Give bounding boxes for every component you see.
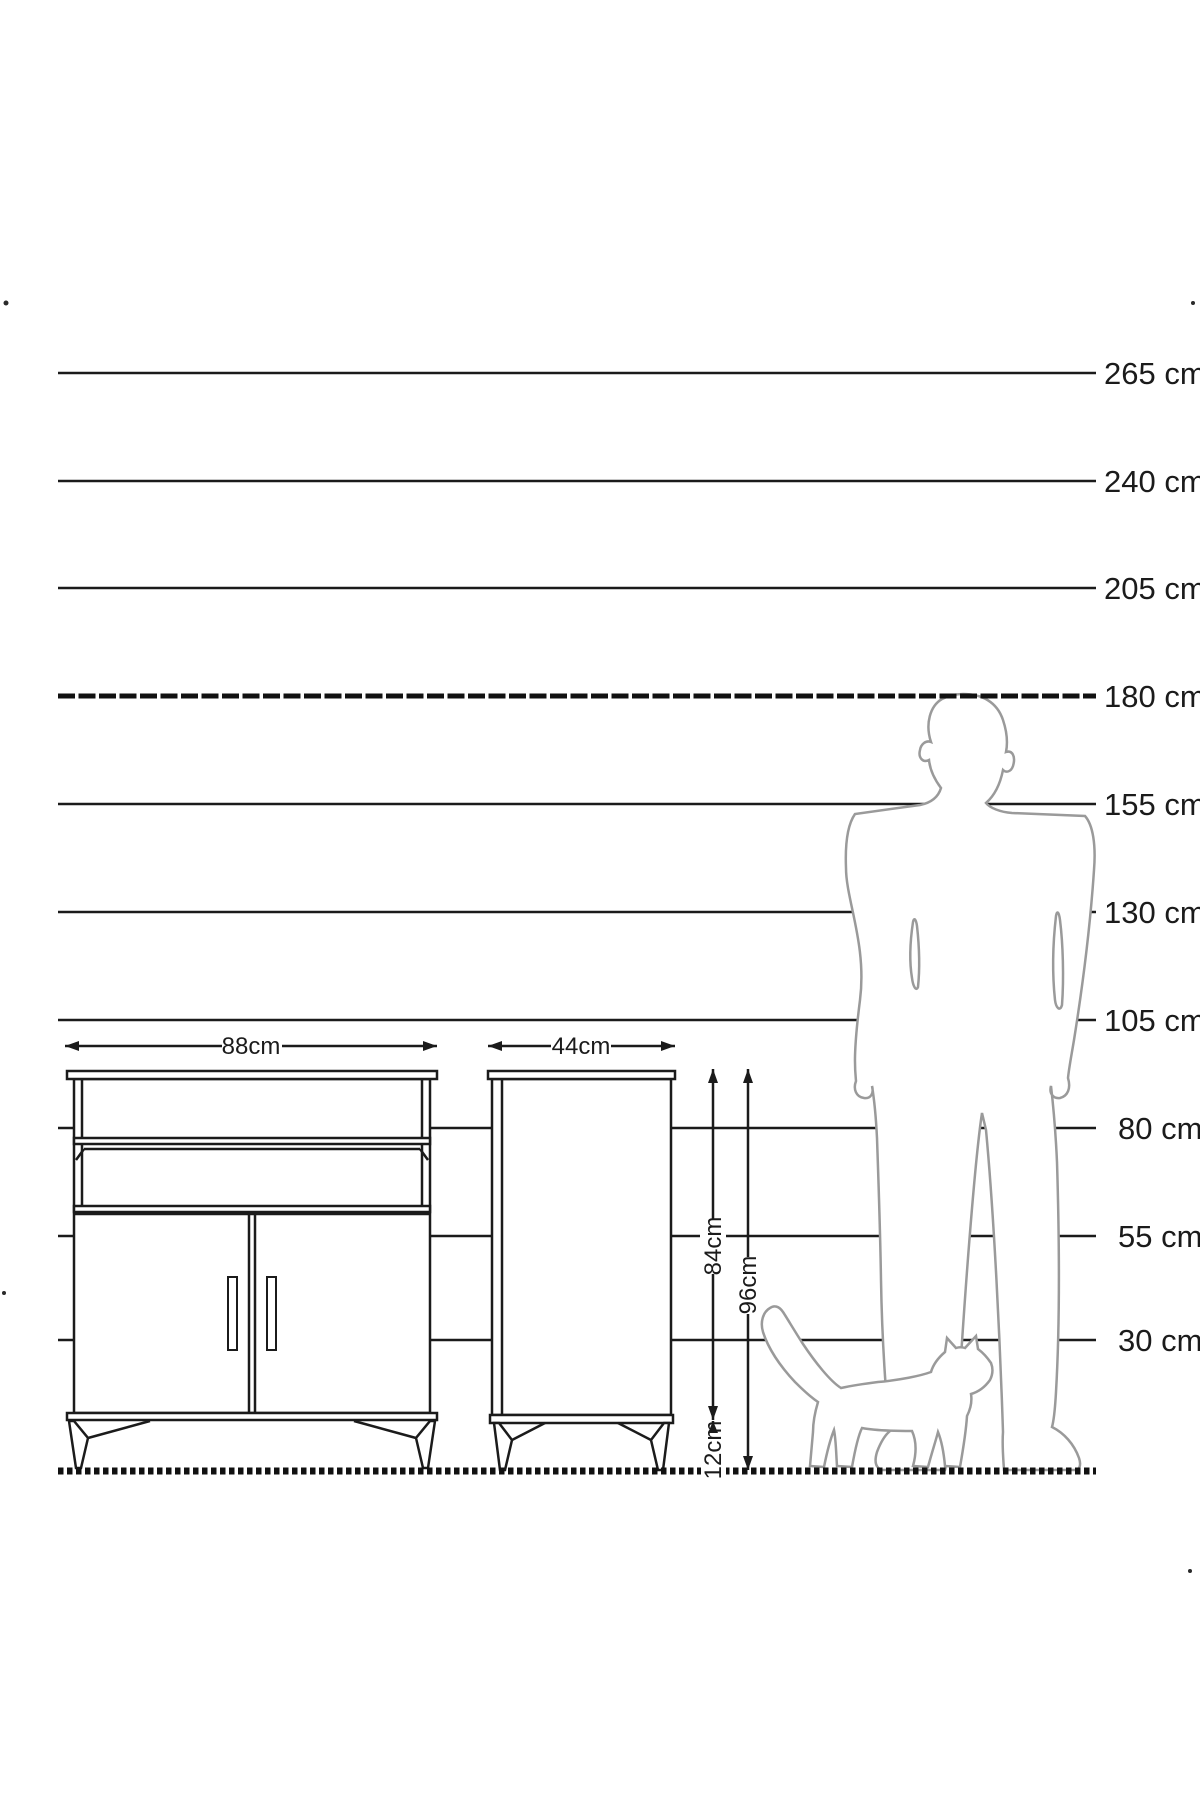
arrow-left — [65, 1041, 79, 1051]
dim-label-width-88: 88cm — [222, 1033, 281, 1060]
man-jacket-fold-left — [910, 919, 919, 989]
cabinet-body — [74, 1079, 430, 1413]
scale-label-180cm: 180 cm — [1104, 679, 1200, 714]
diagram-canvas: 88cm 44cm 84cm 96cm 12cm 265 cm 240 cm 2… — [0, 0, 1200, 1800]
cabinet-bottom-panel — [67, 1413, 437, 1420]
scale-label-30cm: 30 cm — [1118, 1323, 1200, 1358]
dim-label-depth-44: 44cm — [552, 1033, 611, 1060]
scale-label-265cm: 265 cm — [1104, 356, 1200, 391]
arrow-left — [488, 1041, 502, 1051]
dot — [1188, 1569, 1192, 1573]
scale-label-130cm: 130 cm — [1104, 895, 1200, 930]
scale-label-205cm: 205 cm — [1104, 571, 1200, 606]
dim-label-body-height-84: 84cm — [700, 1217, 727, 1276]
dot — [1191, 301, 1195, 305]
door-handle-left — [228, 1277, 237, 1350]
cabinet-niche-bottom — [74, 1206, 430, 1212]
side-leg-brace-right — [618, 1423, 651, 1440]
side-leg-brace-left — [512, 1423, 545, 1440]
side-top-panel — [488, 1071, 675, 1079]
dot — [2, 1291, 6, 1295]
large-cabinet-front — [67, 1071, 437, 1468]
door-handle-right — [267, 1277, 276, 1350]
arrow-up — [743, 1069, 753, 1083]
scale-label-155cm: 155 cm — [1104, 787, 1200, 822]
side-body — [492, 1079, 671, 1415]
dim-label-leg-height-12: 12cm — [700, 1421, 727, 1480]
cabinet-leg-left — [69, 1421, 88, 1468]
scale-label-80cm: 80 cm — [1118, 1111, 1200, 1146]
arrow-right — [423, 1041, 437, 1051]
cabinet-leg-brace-left — [88, 1421, 150, 1438]
side-leg-right — [651, 1423, 669, 1470]
arrow-right — [661, 1041, 675, 1051]
cabinets — [67, 1071, 675, 1470]
cabinet-shelf — [74, 1138, 430, 1144]
side-bottom-panel — [490, 1415, 673, 1423]
size-guide-diagram: 88cm 44cm 84cm 96cm 12cm 265 cm 240 cm 2… — [0, 0, 1200, 1800]
side-leg-left — [494, 1423, 512, 1470]
arrow-down — [708, 1406, 718, 1420]
scale-label-55cm: 55 cm — [1118, 1219, 1200, 1254]
cabinet-leg-right — [416, 1421, 435, 1468]
dot — [4, 301, 9, 306]
height-scale-labels: 265 cm 240 cm 205 cm 180 cm 155 cm 130 c… — [1104, 356, 1200, 1358]
man-jacket-fold-right — [1053, 913, 1063, 1009]
cabinet-leg-brace-right — [354, 1421, 416, 1438]
cabinet-top-panel — [67, 1071, 437, 1079]
scale-label-240cm: 240 cm — [1104, 464, 1200, 499]
cabinet-side-view — [488, 1071, 675, 1470]
dim-label-total-height-96: 96cm — [735, 1256, 762, 1315]
arrow-up — [708, 1069, 718, 1083]
scale-label-105cm: 105 cm — [1104, 1003, 1200, 1038]
